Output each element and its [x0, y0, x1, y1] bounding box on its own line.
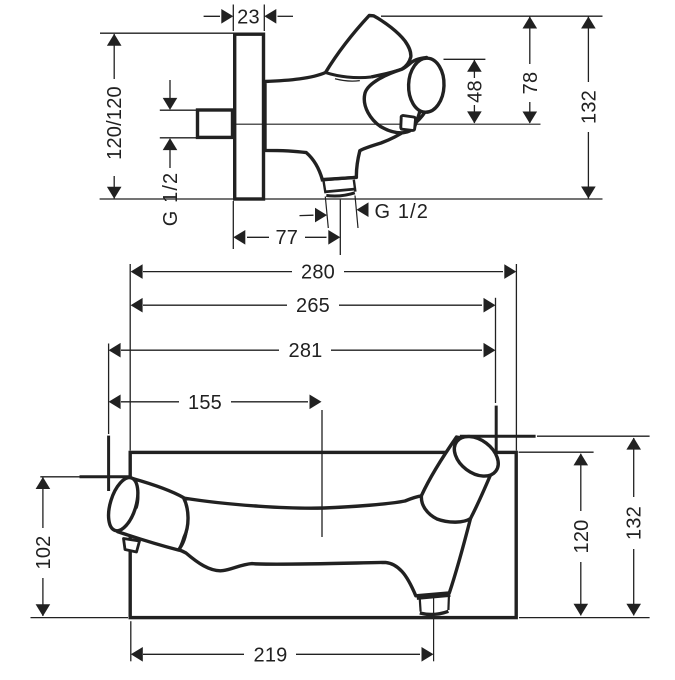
- svg-text:23: 23: [237, 7, 260, 29]
- svg-text:281: 281: [289, 340, 323, 362]
- svg-text:48: 48: [464, 80, 486, 103]
- svg-text:120/120: 120/120: [104, 86, 126, 160]
- svg-text:G 1/2: G 1/2: [375, 201, 429, 223]
- svg-text:G 1/2: G 1/2: [160, 172, 182, 226]
- svg-text:120: 120: [571, 520, 593, 554]
- svg-text:132: 132: [624, 506, 646, 540]
- svg-text:265: 265: [296, 295, 330, 317]
- svg-text:132: 132: [578, 90, 600, 124]
- svg-text:219: 219: [254, 644, 288, 666]
- svg-text:102: 102: [33, 536, 55, 570]
- svg-text:155: 155: [188, 392, 222, 414]
- svg-text:77: 77: [275, 227, 298, 249]
- svg-text:78: 78: [520, 72, 542, 95]
- svg-text:280: 280: [301, 262, 335, 284]
